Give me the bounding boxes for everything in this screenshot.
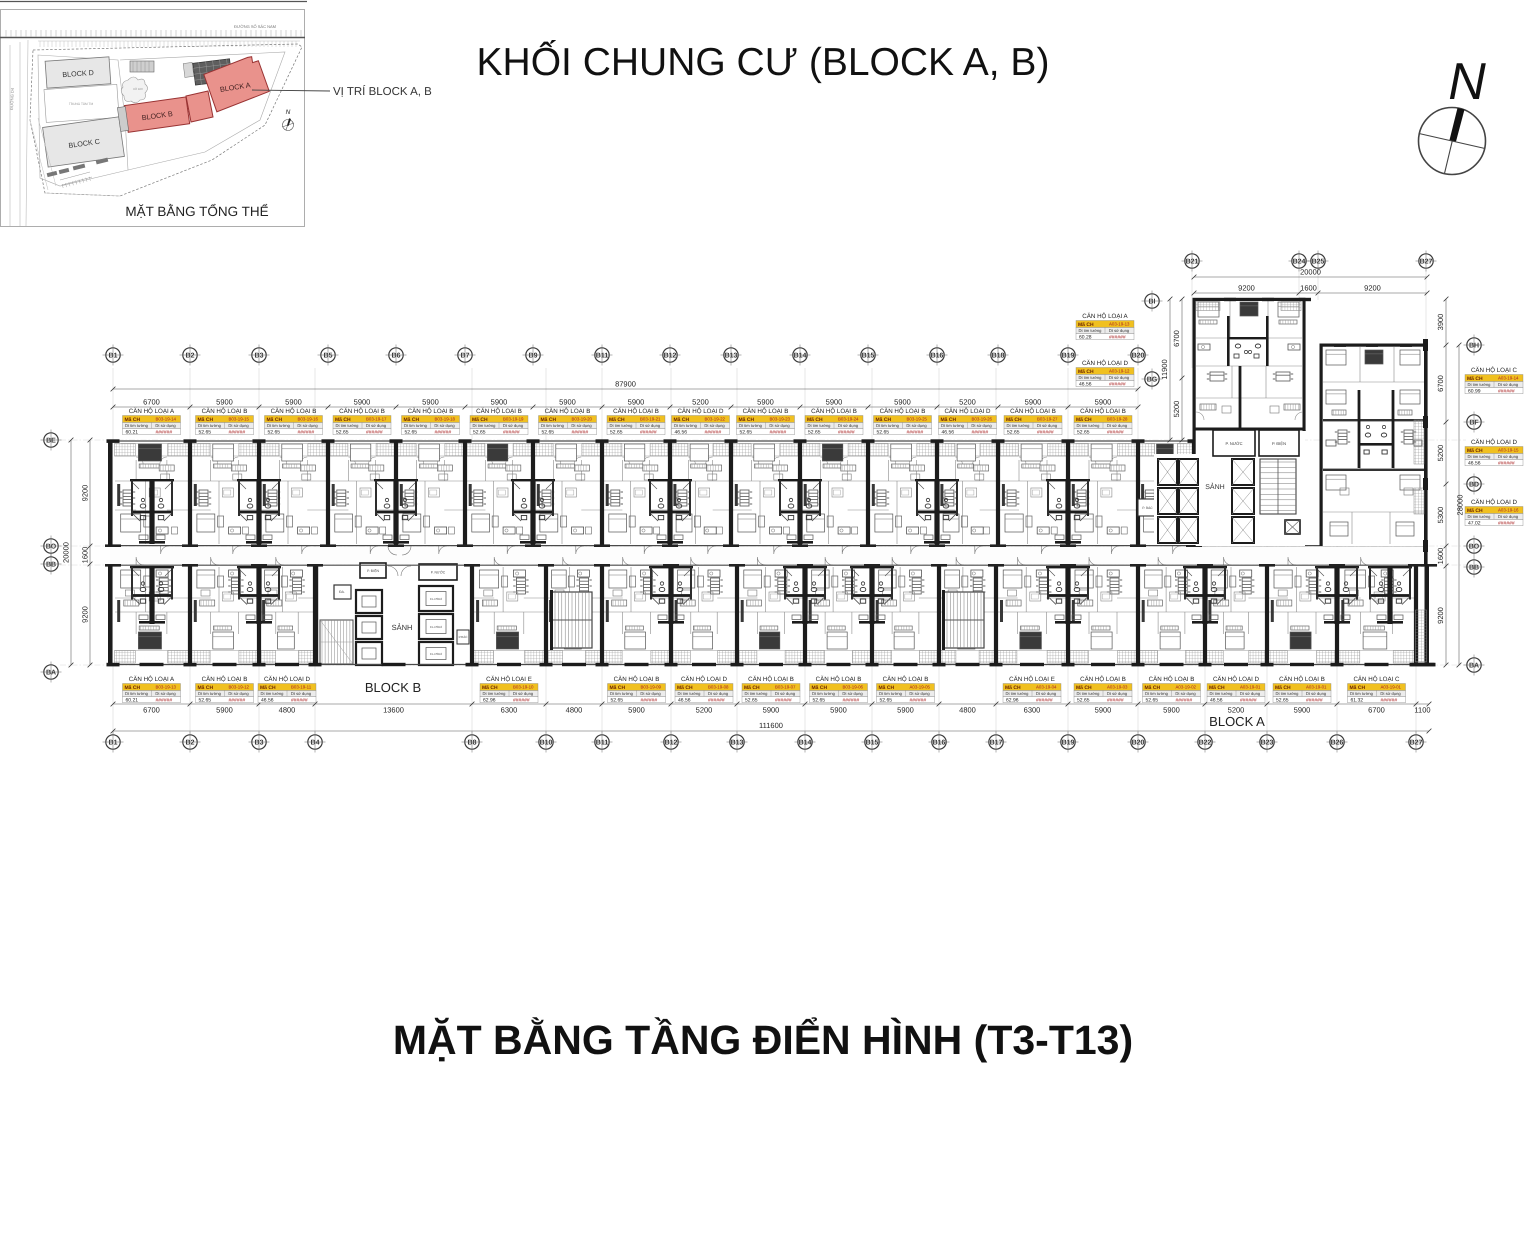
svg-text:CĂN HỘ LOẠI B: CĂN HỘ LOẠI B bbox=[1080, 407, 1126, 415]
svg-text:Dt sử dụng: Dt sử dụng bbox=[769, 423, 790, 428]
svg-text:Dt sử dụng: Dt sử dụng bbox=[503, 423, 524, 428]
svg-text:B03-19-08: B03-19-08 bbox=[708, 685, 729, 690]
svg-text:6700: 6700 bbox=[143, 398, 160, 407]
svg-text:######: ###### bbox=[1381, 697, 1398, 703]
svg-text:Dt tim tường: Dt tim tường bbox=[336, 423, 360, 428]
svg-text:5900: 5900 bbox=[830, 706, 847, 715]
svg-text:6700: 6700 bbox=[1436, 375, 1445, 392]
svg-text:46.56: 46.56 bbox=[675, 429, 688, 435]
svg-text:Dt tim tường: Dt tim tường bbox=[1077, 423, 1101, 428]
svg-text:Dt sử dụng: Dt sử dụng bbox=[434, 423, 455, 428]
svg-text:Dt tim tường: Dt tim tường bbox=[1077, 691, 1101, 696]
svg-text:B03-19-13: B03-19-13 bbox=[156, 685, 177, 690]
svg-text:B03-19-22: B03-19-22 bbox=[705, 417, 726, 422]
svg-text:47.02: 47.02 bbox=[1468, 520, 1481, 526]
svg-text:60.21: 60.21 bbox=[126, 697, 139, 703]
svg-text:52.65: 52.65 bbox=[808, 429, 821, 435]
svg-text:A03-19-03: A03-19-03 bbox=[1107, 685, 1128, 690]
svg-text:20000: 20000 bbox=[62, 542, 71, 563]
svg-text:######: ###### bbox=[708, 697, 725, 703]
svg-text:B03-19-14: B03-19-14 bbox=[156, 417, 177, 422]
svg-text:A03-19-04: A03-19-04 bbox=[1036, 685, 1057, 690]
svg-text:52.65: 52.65 bbox=[877, 429, 890, 435]
svg-text:BG: BG bbox=[1147, 376, 1158, 383]
svg-text:B03-19-27: B03-19-27 bbox=[1037, 417, 1058, 422]
svg-text:ĐƯỜNG SỐ SÁC NAM: ĐƯỜNG SỐ SÁC NAM bbox=[234, 24, 276, 29]
svg-text:9200: 9200 bbox=[1436, 607, 1445, 624]
svg-text:Dt tim tường: Dt tim tường bbox=[1006, 691, 1030, 696]
svg-text:Mã CH: Mã CH bbox=[1275, 685, 1291, 691]
svg-text:Mã CH: Mã CH bbox=[879, 685, 895, 691]
svg-text:9200: 9200 bbox=[1238, 284, 1255, 293]
svg-text:P. NƯỚC: P. NƯỚC bbox=[1226, 441, 1243, 446]
svg-text:CĂN HỘ LOẠI D: CĂN HỘ LOẠI D bbox=[944, 407, 991, 415]
svg-text:P. ĐIỆN: P. ĐIỆN bbox=[367, 569, 379, 573]
svg-text:Mã CH: Mã CH bbox=[541, 417, 557, 423]
svg-text:B03-19-26: B03-19-26 bbox=[972, 417, 993, 422]
svg-text:Dt tim tường: Dt tim tường bbox=[1007, 423, 1031, 428]
svg-text:60.21: 60.21 bbox=[126, 429, 139, 435]
svg-text:Mã CH: Mã CH bbox=[198, 685, 214, 691]
svg-text:46.56: 46.56 bbox=[1468, 460, 1481, 466]
svg-text:######: ###### bbox=[298, 429, 315, 435]
svg-text:Dt tim tường: Dt tim tường bbox=[404, 423, 428, 428]
svg-text:Dt tim tường: Dt tim tường bbox=[879, 691, 903, 696]
svg-text:5900: 5900 bbox=[628, 706, 645, 715]
svg-text:9200: 9200 bbox=[81, 485, 90, 502]
svg-text:B03-19-24: B03-19-24 bbox=[838, 417, 859, 422]
svg-text:Mã CH: Mã CH bbox=[610, 685, 626, 691]
svg-text:Dt tim tường: Dt tim tường bbox=[473, 423, 497, 428]
svg-text:Mã CH: Mã CH bbox=[744, 685, 760, 691]
svg-text:Dt sử dụng: Dt sử dụng bbox=[906, 423, 927, 428]
svg-text:######: ###### bbox=[770, 429, 787, 435]
svg-text:P.RÁC: P.RÁC bbox=[459, 635, 469, 639]
svg-text:1600: 1600 bbox=[81, 547, 90, 564]
svg-text:CĂN HỘ LOẠI D: CĂN HỘ LOẠI D bbox=[1213, 675, 1260, 683]
svg-text:P. ĐIỆN: P. ĐIỆN bbox=[1272, 441, 1286, 446]
svg-text:VỊ TRÍ BLOCK A, B: VỊ TRÍ BLOCK A, B bbox=[333, 85, 432, 98]
svg-text:######: ###### bbox=[572, 429, 589, 435]
svg-text:TRUNG TÂM TM: TRUNG TÂM TM bbox=[69, 102, 94, 106]
svg-text:Mã CH: Mã CH bbox=[125, 685, 141, 691]
svg-text:######: ###### bbox=[1037, 429, 1054, 435]
svg-text:Mã CH: Mã CH bbox=[335, 417, 351, 423]
svg-text:13600: 13600 bbox=[383, 706, 404, 715]
svg-text:Dt tim tường: Dt tim tường bbox=[198, 691, 222, 696]
svg-text:5900: 5900 bbox=[1294, 706, 1311, 715]
svg-text:5900: 5900 bbox=[216, 706, 233, 715]
svg-text:A03-19-14: A03-19-14 bbox=[1498, 376, 1519, 381]
svg-text:6700: 6700 bbox=[1172, 330, 1181, 347]
svg-text:Dt sử dụng: Dt sử dụng bbox=[1109, 375, 1130, 380]
svg-text:CĂN HỘ LOẠI B: CĂN HỘ LOẠI B bbox=[614, 675, 660, 683]
svg-text:6300: 6300 bbox=[501, 706, 518, 715]
svg-text:5900: 5900 bbox=[757, 398, 774, 407]
svg-text:######: ###### bbox=[910, 697, 927, 703]
svg-text:Dt sử dụng: Dt sử dụng bbox=[297, 423, 318, 428]
svg-text:CĂN HỘ LOẠI D: CĂN HỘ LOẠI D bbox=[681, 675, 728, 683]
svg-text:Dt sử dụng: Dt sử dụng bbox=[1380, 691, 1401, 696]
svg-text:Dt tim tường: Dt tim tường bbox=[1145, 691, 1169, 696]
svg-text:Mã CH: Mã CH bbox=[1467, 376, 1483, 382]
svg-text:######: ###### bbox=[1240, 697, 1257, 703]
svg-text:######: ###### bbox=[1498, 460, 1515, 466]
svg-text:CĂN HỘ LOẠI D: CĂN HỘ LOẠI D bbox=[1471, 438, 1518, 446]
svg-text:Mã CH: Mã CH bbox=[609, 417, 625, 423]
svg-text:52.65: 52.65 bbox=[405, 429, 418, 435]
svg-text:EL.P0D2: EL.P0D2 bbox=[430, 625, 442, 629]
svg-text:Dt tim tường: Dt tim tường bbox=[739, 423, 763, 428]
svg-text:5900: 5900 bbox=[1095, 706, 1112, 715]
svg-text:Dt sử dụng: Dt sử dụng bbox=[1107, 691, 1128, 696]
svg-text:Dt tim tường: Dt tim tường bbox=[198, 423, 222, 428]
svg-text:Mã CH: Mã CH bbox=[807, 417, 823, 423]
svg-text:B03-19-20: B03-19-20 bbox=[572, 417, 593, 422]
svg-text:CĂN HỘ LOẠI B: CĂN HỘ LOẠI B bbox=[816, 675, 862, 683]
svg-text:Dt tim tường: Dt tim tường bbox=[1276, 691, 1300, 696]
svg-text:ĐƯỜNG D4: ĐƯỜNG D4 bbox=[9, 87, 15, 110]
svg-text:ĐA.: ĐA. bbox=[339, 590, 345, 594]
svg-text:######: ###### bbox=[229, 429, 246, 435]
svg-text:Mã CH: Mã CH bbox=[1467, 508, 1483, 514]
svg-text:######: ###### bbox=[1498, 388, 1515, 394]
svg-text:Dt tim tường: Dt tim tường bbox=[674, 423, 698, 428]
svg-text:Mã CH: Mã CH bbox=[1209, 685, 1225, 691]
svg-text:5200: 5200 bbox=[696, 706, 713, 715]
svg-text:######: ###### bbox=[972, 429, 989, 435]
svg-text:######: ###### bbox=[1109, 381, 1126, 387]
svg-text:Mã CH: Mã CH bbox=[404, 417, 420, 423]
svg-text:MẶT BẰNG TỔNG THỂ: MẶT BẰNG TỔNG THỂ bbox=[125, 203, 268, 219]
svg-text:P. RÁC: P. RÁC bbox=[1142, 506, 1153, 510]
svg-text:######: ###### bbox=[1498, 520, 1515, 526]
svg-text:5900: 5900 bbox=[763, 706, 780, 715]
svg-text:CĂN HỘ LOẠI B: CĂN HỘ LOẠI B bbox=[613, 407, 659, 415]
svg-text:######: ###### bbox=[435, 429, 452, 435]
svg-text:5200: 5200 bbox=[1436, 445, 1445, 462]
svg-text:B03-19-17: B03-19-17 bbox=[366, 417, 387, 422]
svg-text:Dt tim tường: Dt tim tường bbox=[261, 691, 285, 696]
svg-text:Dt tim tường: Dt tim tường bbox=[812, 691, 836, 696]
svg-text:######: ###### bbox=[907, 429, 924, 435]
svg-text:5900: 5900 bbox=[1095, 398, 1112, 407]
svg-text:Dt tim tường: Dt tim tường bbox=[678, 691, 702, 696]
svg-text:6300: 6300 bbox=[1024, 706, 1041, 715]
svg-text:CĂN HỘ LOẠI D: CĂN HỘ LOẠI D bbox=[264, 675, 311, 683]
svg-text:B03-19-15: B03-19-15 bbox=[229, 417, 250, 422]
svg-text:Dt sử dụng: Dt sử dụng bbox=[704, 423, 725, 428]
svg-text:CĂN HỘ LOẠI B: CĂN HỘ LOẠI B bbox=[408, 407, 454, 415]
svg-text:Dt sử dụng: Dt sử dụng bbox=[1498, 382, 1519, 387]
svg-text:Mã CH: Mã CH bbox=[1006, 417, 1022, 423]
svg-text:20000: 20000 bbox=[1300, 268, 1321, 277]
svg-text:62.96: 62.96 bbox=[1006, 697, 1019, 703]
svg-text:Dt sử dụng: Dt sử dụng bbox=[640, 691, 661, 696]
svg-text:Dt sử dụng: Dt sử dụng bbox=[291, 691, 312, 696]
svg-text:5300: 5300 bbox=[1436, 507, 1445, 524]
svg-text:1600: 1600 bbox=[1300, 284, 1317, 293]
svg-text:P. NƯỚC: P. NƯỚC bbox=[431, 571, 446, 575]
svg-text:4800: 4800 bbox=[566, 706, 583, 715]
svg-text:5200: 5200 bbox=[959, 398, 976, 407]
svg-text:######: ###### bbox=[156, 697, 173, 703]
svg-text:B03-19-09: B03-19-09 bbox=[641, 685, 662, 690]
svg-text:######: ###### bbox=[1036, 697, 1053, 703]
svg-text:52.65: 52.65 bbox=[611, 697, 624, 703]
svg-text:5900: 5900 bbox=[1025, 398, 1042, 407]
svg-text:9200: 9200 bbox=[1364, 284, 1381, 293]
svg-text:######: ###### bbox=[775, 697, 792, 703]
svg-text:CĂN HỘ LOẠI B: CĂN HỘ LOẠI B bbox=[748, 675, 794, 683]
svg-text:5900: 5900 bbox=[1163, 706, 1180, 715]
svg-text:KHỐI CHUNG CƯ (BLOCK A, B): KHỐI CHUNG CƯ (BLOCK A, B) bbox=[477, 40, 1050, 84]
svg-text:9200: 9200 bbox=[81, 606, 90, 623]
svg-text:######: ###### bbox=[503, 429, 520, 435]
svg-text:CĂN HỘ LOẠI E: CĂN HỘ LOẠI E bbox=[486, 675, 532, 683]
svg-text:######: ###### bbox=[291, 697, 308, 703]
svg-text:6700: 6700 bbox=[143, 706, 160, 715]
svg-text:######: ###### bbox=[641, 697, 658, 703]
svg-text:Mã CH: Mã CH bbox=[1005, 685, 1021, 691]
svg-text:A03-19-16: A03-19-16 bbox=[1498, 508, 1519, 513]
svg-text:CĂN HỘ LOẠI B: CĂN HỘ LOẠI B bbox=[202, 675, 248, 683]
svg-text:Dt sử dụng: Dt sử dụng bbox=[366, 423, 387, 428]
svg-text:52.65: 52.65 bbox=[1007, 429, 1020, 435]
svg-text:Mã CH: Mã CH bbox=[482, 685, 498, 691]
svg-text:Dt tim tường: Dt tim tường bbox=[808, 423, 832, 428]
svg-text:Dt sử dụng: Dt sử dụng bbox=[1175, 691, 1196, 696]
svg-text:Dt sử dụng: Dt sử dụng bbox=[155, 691, 176, 696]
svg-text:Mã CH: Mã CH bbox=[1076, 417, 1092, 423]
svg-text:CĂN HỘ LOẠI C: CĂN HỘ LOẠI C bbox=[1353, 675, 1400, 683]
svg-text:BO: BO bbox=[46, 543, 57, 550]
svg-text:Dt tim tường: Dt tim tường bbox=[125, 423, 149, 428]
svg-text:B03-19-12: B03-19-12 bbox=[229, 685, 250, 690]
svg-text:Mã CH: Mã CH bbox=[1076, 685, 1092, 691]
svg-text:A03-19-13: A03-19-13 bbox=[1109, 322, 1130, 327]
svg-text:Mã CH: Mã CH bbox=[1078, 369, 1094, 375]
svg-text:SẢNH: SẢNH bbox=[1205, 482, 1224, 491]
svg-text:Dt tim tường: Dt tim tường bbox=[745, 691, 769, 696]
svg-text:Dt tim tường: Dt tim tường bbox=[1468, 514, 1492, 519]
svg-text:Dt sử dụng: Dt sử dụng bbox=[775, 691, 796, 696]
svg-text:46.56: 46.56 bbox=[1210, 697, 1223, 703]
svg-text:B03-19-23: B03-19-23 bbox=[770, 417, 791, 422]
svg-text:Dt sử dụng: Dt sử dụng bbox=[513, 691, 534, 696]
svg-text:61.32: 61.32 bbox=[1351, 697, 1364, 703]
svg-text:87900: 87900 bbox=[615, 380, 636, 389]
svg-text:######: ###### bbox=[640, 429, 657, 435]
svg-text:BLOCK A: BLOCK A bbox=[1209, 714, 1265, 729]
svg-text:CĂN HỘ LOẠI B: CĂN HỘ LOẠI B bbox=[743, 407, 789, 415]
svg-text:Mã CH: Mã CH bbox=[1350, 685, 1366, 691]
svg-text:CĂN HỘ LOẠI A: CĂN HỘ LOẠI A bbox=[1082, 312, 1128, 320]
svg-text:B03-19-21: B03-19-21 bbox=[640, 417, 661, 422]
svg-text:B03-19-11: B03-19-11 bbox=[291, 685, 312, 690]
svg-text:5200: 5200 bbox=[692, 398, 709, 407]
svg-text:46.56: 46.56 bbox=[261, 697, 274, 703]
svg-text:52.65: 52.65 bbox=[880, 697, 893, 703]
svg-text:Mã CH: Mã CH bbox=[1467, 448, 1483, 454]
svg-text:Dt sử dụng: Dt sử dụng bbox=[1306, 691, 1327, 696]
svg-text:Dt sử dụng: Dt sử dụng bbox=[909, 691, 930, 696]
svg-text:5900: 5900 bbox=[894, 398, 911, 407]
svg-text:52.65: 52.65 bbox=[740, 429, 753, 435]
svg-text:A03-19-01: A03-19-01 bbox=[1381, 685, 1402, 690]
svg-text:52.65: 52.65 bbox=[813, 697, 826, 703]
svg-text:CĂN HỘ LOẠI B: CĂN HỘ LOẠI B bbox=[476, 407, 522, 415]
svg-text:52.65: 52.65 bbox=[199, 429, 212, 435]
svg-text:######: ###### bbox=[843, 697, 860, 703]
svg-text:CĂN HỘ LOẠI D: CĂN HỘ LOẠI D bbox=[1082, 359, 1129, 367]
svg-text:Mã CH: Mã CH bbox=[260, 685, 276, 691]
svg-text:CĂN HỘ LOẠI B: CĂN HỘ LOẠI B bbox=[1149, 675, 1195, 683]
svg-text:Dt sử dụng: Dt sử dụng bbox=[1036, 691, 1057, 696]
svg-text:Dt sử dụng: Dt sử dụng bbox=[1037, 423, 1058, 428]
svg-text:Dt tim tường: Dt tim tường bbox=[941, 423, 965, 428]
svg-text:######: ###### bbox=[513, 697, 530, 703]
svg-text:111600: 111600 bbox=[759, 721, 783, 730]
svg-text:4800: 4800 bbox=[279, 706, 296, 715]
svg-text:CĂN HỘ LOẠI B: CĂN HỘ LOẠI B bbox=[883, 675, 929, 683]
svg-text:Dt sử dụng: Dt sử dụng bbox=[1498, 454, 1519, 459]
svg-text:52.65: 52.65 bbox=[473, 429, 486, 435]
svg-text:CĂN HỘ LOẠI A: CĂN HỘ LOẠI A bbox=[129, 407, 175, 415]
svg-text:Dt sử dụng: Dt sử dụng bbox=[971, 423, 992, 428]
svg-text:CĂN HỘ LOẠI D: CĂN HỘ LOẠI D bbox=[1471, 498, 1518, 506]
svg-text:Dt tim tường: Dt tim tường bbox=[125, 691, 149, 696]
svg-text:SẢNH: SẢNH bbox=[392, 623, 413, 632]
svg-text:5900: 5900 bbox=[559, 398, 576, 407]
svg-text:A03-19-15: A03-19-15 bbox=[1498, 448, 1519, 453]
svg-text:######: ###### bbox=[1107, 697, 1124, 703]
svg-text:60.99: 60.99 bbox=[1468, 388, 1481, 394]
svg-text:A03-19-05: A03-19-05 bbox=[910, 685, 931, 690]
svg-text:EL.P0D2: EL.P0D2 bbox=[430, 597, 442, 601]
svg-text:Dt tim tường: Dt tim tường bbox=[1350, 691, 1374, 696]
svg-text:B03-19-18: B03-19-18 bbox=[435, 417, 456, 422]
svg-text:5900: 5900 bbox=[422, 398, 439, 407]
svg-text:Mã CH: Mã CH bbox=[941, 417, 957, 423]
svg-text:######: ###### bbox=[1306, 697, 1323, 703]
svg-text:EL.P0D2: EL.P0D2 bbox=[430, 652, 442, 656]
svg-text:CĂN HỘ LOẠI B: CĂN HỘ LOẠI B bbox=[271, 407, 317, 415]
svg-text:Dt sử dụng: Dt sử dụng bbox=[842, 691, 863, 696]
svg-text:Mã CH: Mã CH bbox=[876, 417, 892, 423]
svg-text:Dt tim tường: Dt tim tường bbox=[1210, 691, 1234, 696]
svg-text:Mã CH: Mã CH bbox=[674, 417, 690, 423]
svg-text:Mã CH: Mã CH bbox=[198, 417, 214, 423]
svg-text:CĂN HỘ LOẠI D: CĂN HỘ LOẠI D bbox=[677, 407, 724, 415]
svg-text:A03-19-12: A03-19-12 bbox=[1109, 369, 1130, 374]
svg-text:Dt sử dụng: Dt sử dụng bbox=[1109, 328, 1130, 333]
svg-text:52.65: 52.65 bbox=[1077, 697, 1090, 703]
svg-text:Dt tim tường: Dt tim tường bbox=[610, 423, 634, 428]
svg-text:B03-19-16: B03-19-16 bbox=[298, 417, 319, 422]
svg-text:Dt sử dụng: Dt sử dụng bbox=[228, 691, 249, 696]
svg-text:B03-19-06: B03-19-06 bbox=[843, 685, 864, 690]
svg-text:######: ###### bbox=[838, 429, 855, 435]
svg-text:Dt sử dụng: Dt sử dụng bbox=[1498, 514, 1519, 519]
svg-text:5900: 5900 bbox=[216, 398, 233, 407]
svg-text:Mã CH: Mã CH bbox=[1078, 322, 1094, 328]
svg-text:Dt sử dụng: Dt sử dụng bbox=[708, 691, 729, 696]
svg-text:52.65: 52.65 bbox=[542, 429, 555, 435]
svg-text:Dt sử dụng: Dt sử dụng bbox=[1240, 691, 1261, 696]
svg-text:Mã CH: Mã CH bbox=[739, 417, 755, 423]
svg-text:5900: 5900 bbox=[285, 398, 302, 407]
svg-text:Dt sử dụng: Dt sử dụng bbox=[228, 423, 249, 428]
svg-text:Dt tim tường: Dt tim tường bbox=[1468, 454, 1492, 459]
svg-text:CĂN HỘ LOẠI E: CĂN HỘ LOẠI E bbox=[1009, 675, 1055, 683]
svg-text:Dt tim tường: Dt tim tường bbox=[610, 691, 634, 696]
svg-text:N: N bbox=[286, 109, 291, 116]
svg-text:Dt tim tường: Dt tim tường bbox=[1079, 328, 1103, 333]
svg-text:CĂN HỘ LOẠI B: CĂN HỘ LOẠI B bbox=[1010, 407, 1056, 415]
svg-text:6700: 6700 bbox=[1368, 706, 1385, 715]
svg-text:CĂN HỘ LOẠI B: CĂN HỘ LOẠI B bbox=[811, 407, 857, 415]
svg-text:52.65: 52.65 bbox=[1276, 697, 1289, 703]
svg-text:Dt tim tường: Dt tim tường bbox=[267, 423, 291, 428]
svg-text:CĂN HỘ LOẠI C: CĂN HỘ LOẠI C bbox=[1471, 366, 1518, 374]
svg-text:Mã CH: Mã CH bbox=[1145, 685, 1161, 691]
svg-text:52.65: 52.65 bbox=[610, 429, 623, 435]
svg-text:1600: 1600 bbox=[1436, 548, 1445, 565]
svg-text:Dt tim tường: Dt tim tường bbox=[1079, 375, 1103, 380]
svg-text:CĂN HỘ LOẠI B: CĂN HỘ LOẠI B bbox=[339, 407, 385, 415]
svg-text:CĂN HỘ LOẠI B: CĂN HỘ LOẠI B bbox=[202, 407, 248, 415]
svg-text:######: ###### bbox=[366, 429, 383, 435]
svg-text:52.65: 52.65 bbox=[336, 429, 349, 435]
svg-text:MẶT BẰNG TẦNG ĐIỂN HÌNH (T3-T1: MẶT BẰNG TẦNG ĐIỂN HÌNH (T3-T13) bbox=[393, 1017, 1133, 1063]
svg-text:A03-19-01: A03-19-01 bbox=[1240, 685, 1261, 690]
svg-text:46.56: 46.56 bbox=[678, 697, 691, 703]
svg-text:28000: 28000 bbox=[1456, 495, 1465, 516]
svg-text:BF: BF bbox=[1469, 419, 1479, 426]
svg-text:B03-19-28: B03-19-28 bbox=[1107, 417, 1128, 422]
svg-text:N: N bbox=[1448, 53, 1486, 111]
svg-text:A03-19-02: A03-19-02 bbox=[1176, 685, 1197, 690]
svg-text:Mã CH: Mã CH bbox=[812, 685, 828, 691]
svg-text:CĂN HỘ LOẠI B: CĂN HỘ LOẠI B bbox=[1080, 675, 1126, 683]
svg-text:Mã CH: Mã CH bbox=[472, 417, 488, 423]
svg-text:Dt tim tường: Dt tim tường bbox=[541, 423, 565, 428]
svg-text:52.65: 52.65 bbox=[1146, 697, 1159, 703]
svg-text:BLOCK B: BLOCK B bbox=[365, 680, 421, 695]
svg-text:Dt tim tường: Dt tim tường bbox=[876, 423, 900, 428]
svg-text:60.28: 60.28 bbox=[1079, 334, 1092, 340]
svg-text:Dt sử dụng: Dt sử dụng bbox=[640, 423, 661, 428]
svg-text:Dt sử dụng: Dt sử dụng bbox=[838, 423, 859, 428]
svg-text:11900: 11900 bbox=[1160, 359, 1169, 379]
svg-text:HỒ BƠI: HỒ BƠI bbox=[133, 87, 143, 91]
svg-text:BO: BO bbox=[1469, 543, 1480, 550]
svg-text:62.96: 62.96 bbox=[483, 697, 496, 703]
svg-text:5900: 5900 bbox=[354, 398, 371, 407]
svg-text:5200: 5200 bbox=[1172, 401, 1181, 418]
svg-text:1100: 1100 bbox=[1414, 706, 1430, 715]
svg-text:######: ###### bbox=[156, 429, 173, 435]
svg-text:46.56: 46.56 bbox=[1079, 381, 1092, 387]
svg-text:B03-19-10: B03-19-10 bbox=[513, 685, 534, 690]
svg-text:Dt tim tường: Dt tim tường bbox=[1468, 382, 1492, 387]
svg-text:######: ###### bbox=[705, 429, 722, 435]
svg-text:CĂN HỘ LOẠI B: CĂN HỘ LOẠI B bbox=[1279, 675, 1325, 683]
svg-text:52.65: 52.65 bbox=[199, 697, 212, 703]
svg-text:######: ###### bbox=[1107, 429, 1124, 435]
svg-text:Dt tim tường: Dt tim tường bbox=[483, 691, 507, 696]
